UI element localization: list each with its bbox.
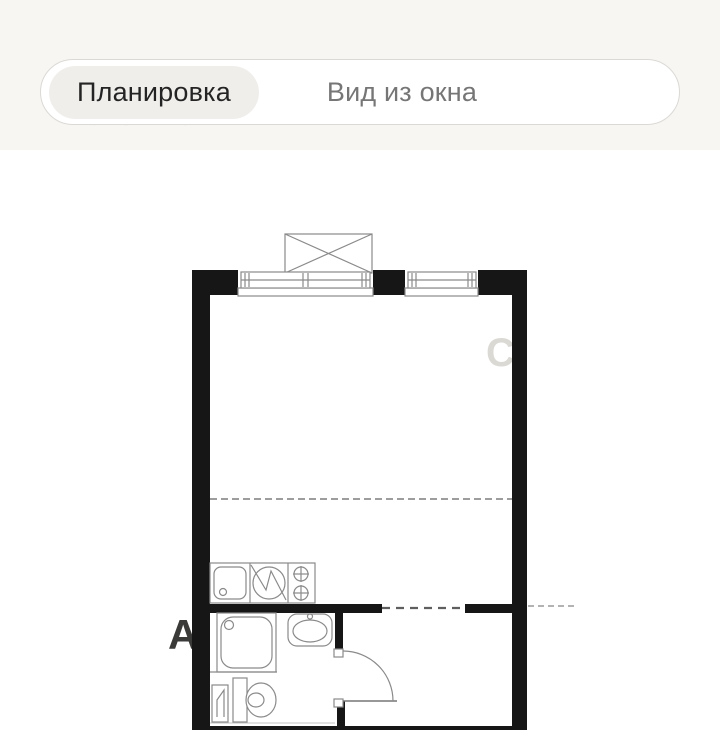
washbasin [288,614,332,646]
watermark-text-middle: С [486,331,515,375]
window-single [405,272,478,296]
shower-tray [217,613,276,672]
kitchen-sink [214,567,246,599]
toilet [233,678,276,722]
tab-bar: Планировка Вид из окна [40,59,680,125]
tab-vid-iz-okna[interactable]: Вид из окна [267,60,527,124]
window-double [238,272,373,296]
ac-unit-box [285,234,372,273]
water-heater [212,685,228,722]
tab-planirovka[interactable]: Планировка [41,60,267,124]
tab-vid-iz-okna-label: Вид из окна [327,77,477,108]
tab-planirovka-label: Планировка [77,77,231,108]
entrance-door-swing [334,649,397,707]
